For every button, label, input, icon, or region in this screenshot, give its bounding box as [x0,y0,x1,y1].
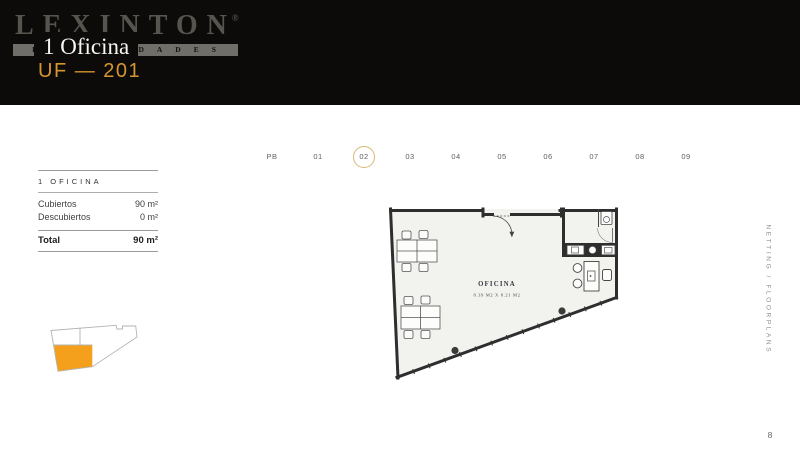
info-row-value: 90 m² [135,198,158,211]
floor-option-06[interactable]: 06 [536,146,560,168]
floor-option-04[interactable]: 04 [444,146,468,168]
floor-selector: PB010203040506070809 [260,146,698,168]
section-side-label: NETTING / FLOORPLANS [765,225,772,341]
floor-option-03[interactable]: 03 [398,146,422,168]
room-label: OFICINA [478,281,516,288]
column [451,347,458,354]
info-panel: 1 OFICINA Cubiertos90 m²Descubiertos0 m²… [38,170,158,252]
info-panel-title: 1 OFICINA [38,171,158,192]
page: LEXINTON® PROPIEDADES 1 Oficina UF — 201… [0,0,800,475]
floor-option-pb[interactable]: PB [260,146,284,168]
page-number: 8 [764,430,776,440]
registered-mark-icon: ® [232,13,239,23]
floor-option-01[interactable]: 01 [306,146,330,168]
kitchenette [562,243,617,257]
total-row: Total 90 m² [38,231,158,251]
total-label: Total [38,231,60,251]
info-row-value: 0 m² [140,211,158,224]
info-row-label: Descubiertos [38,211,91,224]
floor-plan: OFICINA 8.39 M2 X 8.21 M2 [380,200,628,395]
floor-option-08[interactable]: 08 [628,146,652,168]
floor-option-05[interactable]: 05 [490,146,514,168]
info-row-label: Cubiertos [38,198,77,211]
header: LEXINTON® PROPIEDADES 1 Oficina UF — 201 [0,0,800,105]
room-dimensions: 8.39 M2 X 8.21 M2 [474,293,521,298]
key-plan [46,318,141,376]
info-rows: Cubiertos90 m²Descubiertos0 m² [38,193,158,230]
column [558,307,565,314]
total-value: 90 m² [133,231,158,251]
unit-code: UF — 201 [38,60,141,83]
divider [38,251,158,252]
unit-title: 1 Oficina [34,32,138,63]
info-row: Descubiertos0 m² [38,211,158,224]
floor-option-02[interactable]: 02 [352,146,376,168]
floor-option-09[interactable]: 09 [674,146,698,168]
info-row: Cubiertos90 m² [38,198,158,211]
floor-option-07[interactable]: 07 [582,146,606,168]
